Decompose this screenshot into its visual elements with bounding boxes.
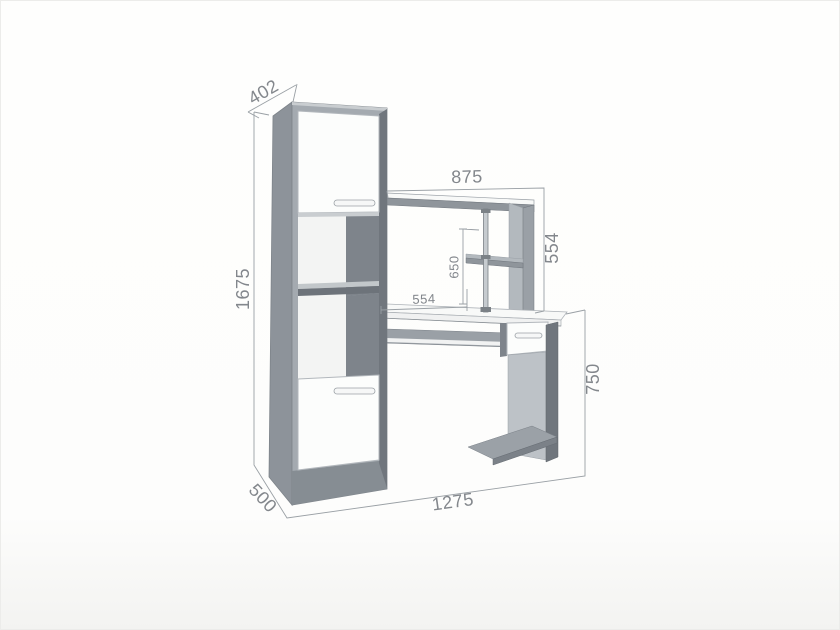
dim-desk-height: 750 [566,310,603,395]
cabinet-right-stile [379,109,387,488]
dim-label-monitor-shelf-height: 650 [446,255,461,278]
drawer-box-side [500,323,507,357]
dim-label-desk-depth: 554 [412,291,436,307]
drawer-handle [515,333,542,338]
dim-label-cabinet-height: 1675 [233,268,253,310]
diagram-canvas: 402 1675 500 1275 750 875 554 [0,0,840,630]
dim-650-ticks [459,229,479,304]
dim-cabinet-height: 1675 [233,112,269,310]
dim-monitor-shelf-height: 650 [446,229,479,304]
cabinet-upper-door [298,111,379,213]
cabinet [269,102,387,505]
desk [381,304,567,465]
hutch [387,193,534,316]
pole-top-collar [481,209,491,213]
drawer-front [507,322,548,355]
pole-shaft [484,209,489,312]
dim-label-overall-width: 1275 [431,489,475,515]
cabinet-side-panel [269,102,292,505]
dim-label-hutch-width: 875 [451,166,483,187]
dim-750-extension [566,310,585,314]
cabinet-upper-door-handle [334,200,375,206]
hutch-right-panel-front-face [523,205,534,316]
dim-label-hutch-height: 554 [542,232,562,264]
cabinet-open-shelf-2-side [346,293,379,378]
pole-base-collar [481,307,492,312]
dim-label-desk-height: 750 [583,363,603,395]
pole-shelf-bracket [481,255,491,259]
furniture-diagram: 402 1675 500 1275 750 875 554 [1,1,840,630]
cabinet-open-shelf-2-back [298,296,346,379]
dim-overall-width: 1275 [431,489,475,515]
dim-1675-extension [254,112,269,115]
cabinet-lower-door-handle [334,388,375,394]
